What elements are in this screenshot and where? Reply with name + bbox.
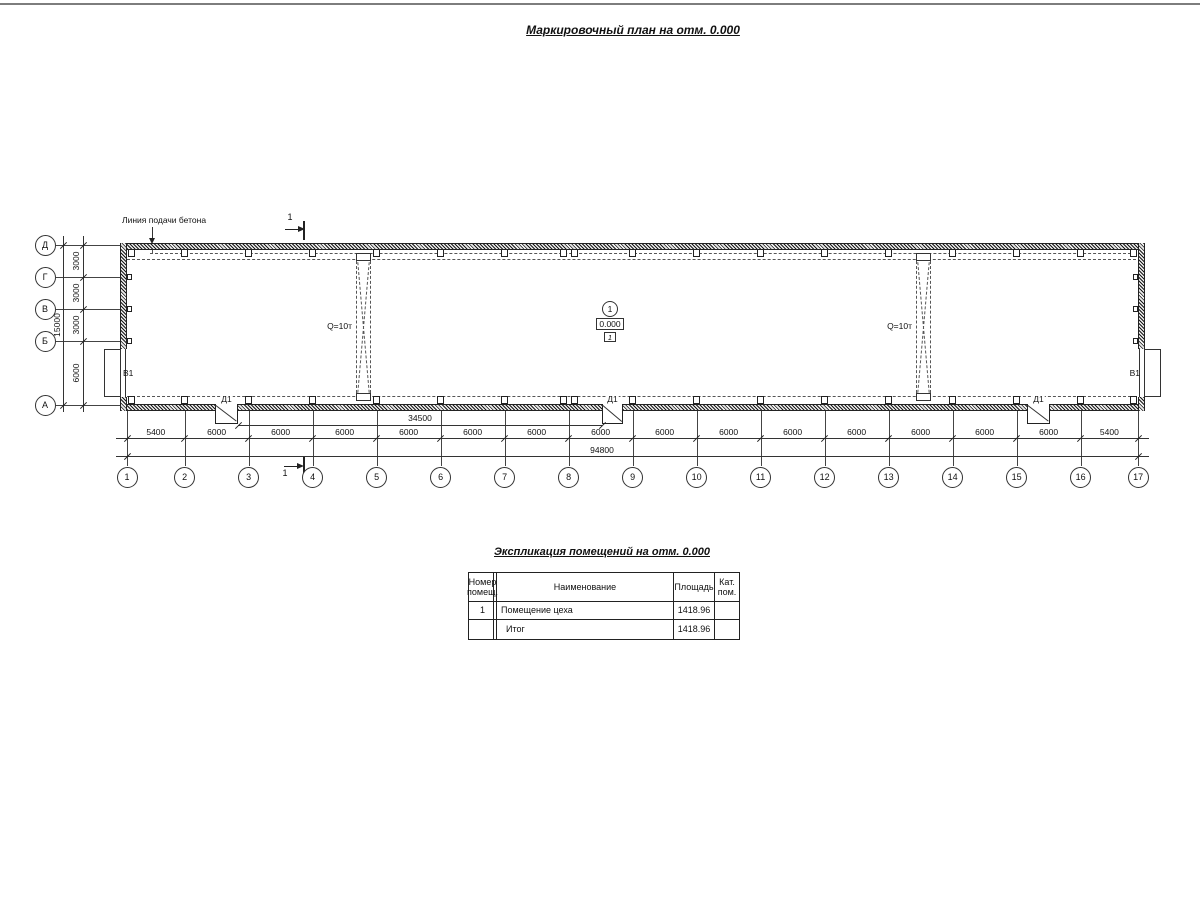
grid-bubble: 12 [814, 467, 835, 488]
column-marker [571, 249, 578, 257]
crane-bracket [916, 393, 931, 401]
total-dim-label: 94800 [589, 445, 615, 455]
column-marker [309, 249, 316, 257]
grid-bubble: 13 [878, 467, 899, 488]
dim-label: 6000 [782, 427, 803, 437]
axis-bubble: А [35, 395, 56, 416]
column-marker [560, 249, 567, 257]
dim-label: 6000 [846, 427, 867, 437]
crane-beam-edge [370, 261, 371, 393]
marking-plan: Линия подачи бетона 1 1 1 0.000 1 В1В1Q=… [0, 0, 1200, 520]
wall-pilaster [1133, 306, 1138, 312]
wall [120, 243, 127, 349]
axis-bubble: Г [35, 267, 56, 288]
elevation-mark: 0.000 [596, 318, 624, 330]
grid-bubble: 5 [366, 467, 387, 488]
column-marker [571, 396, 578, 404]
axis-extension-line [56, 405, 120, 406]
column-marker [1130, 249, 1137, 257]
crane-beam-edge [356, 261, 357, 393]
room-number-mark: 1 [602, 301, 618, 317]
grid-bubble: 17 [1128, 467, 1149, 488]
column-marker [501, 396, 508, 404]
concrete-line-pointer [152, 227, 153, 238]
grid-bubble: 11 [750, 467, 771, 488]
wall [238, 404, 602, 411]
grid-bubble: 4 [302, 467, 323, 488]
wall [120, 404, 215, 411]
column-marker [245, 396, 252, 404]
table-cell-room-area: 1418.96 [674, 602, 715, 620]
dim-label: 6000 [462, 427, 483, 437]
gate-vestibule [1144, 349, 1161, 397]
door-label: Д1 [1032, 394, 1044, 404]
column-marker [1013, 249, 1020, 257]
wall [1138, 397, 1145, 411]
table-cell-room-name: Помещение цеха [497, 602, 674, 620]
col-header-area: Площадь [674, 573, 715, 602]
dim-label: 6000 [910, 427, 931, 437]
column-marker [885, 396, 892, 404]
gate-vestibule [104, 349, 121, 397]
dim-line [238, 425, 602, 426]
column-marker [245, 249, 252, 257]
dim-label: 6000 [334, 427, 355, 437]
crane-bracket [916, 253, 931, 261]
grid-bubble: 16 [1070, 467, 1091, 488]
column-marker [757, 396, 764, 404]
wall-pilaster [127, 306, 132, 312]
section-mark-top-label: 1 [287, 212, 292, 222]
table-cell-room-category [715, 602, 739, 620]
dim-label: 5400 [1099, 427, 1120, 437]
crane-bracket [356, 253, 371, 261]
grid-bubble: 10 [686, 467, 707, 488]
column-marker [128, 249, 135, 257]
axis-extension-line [56, 277, 120, 278]
column-marker [949, 396, 956, 404]
crane-rail-dashed-line [127, 259, 1136, 260]
grid-bubble: 7 [494, 467, 515, 488]
dim-label: 6000 [398, 427, 419, 437]
dim-label: 3000 [71, 316, 81, 335]
concrete-line-label: Линия подачи бетона [122, 215, 206, 225]
table-double-line [493, 573, 494, 639]
section-mark-bottom-label: 1 [282, 468, 287, 478]
dim-label: 6000 [1038, 427, 1059, 437]
dim-label: 3000 [71, 284, 81, 303]
dim-label: 6000 [526, 427, 547, 437]
column-marker [821, 396, 828, 404]
column-marker [1130, 396, 1137, 404]
column-marker [629, 396, 636, 404]
column-marker [1077, 249, 1084, 257]
wall-pilaster [1133, 274, 1138, 280]
grid-bubble: 14 [942, 467, 963, 488]
wall-pilaster [127, 338, 132, 344]
column-marker [373, 396, 380, 404]
axis-extension-line [56, 245, 120, 246]
dim-label: 5400 [145, 427, 166, 437]
crane-beam-edge [916, 261, 917, 393]
wall [1138, 243, 1145, 349]
wall-pilaster [1133, 338, 1138, 344]
crane-capacity-label: Q=10т [872, 321, 912, 331]
column-marker [309, 396, 316, 404]
crane-bracket [356, 393, 371, 401]
column-marker [501, 249, 508, 257]
column-marker [373, 249, 380, 257]
column-marker [437, 249, 444, 257]
dim-label: 6000 [206, 427, 227, 437]
explication-title: Экспликация помещений на отм. 0.000 [494, 546, 710, 558]
col-header-category: Кат. пом. [715, 573, 739, 602]
column-marker [629, 249, 636, 257]
dim-label: 6000 [590, 427, 611, 437]
floor-type-mark: 1 [604, 332, 616, 342]
wall [623, 404, 1027, 411]
dim-label: 6000 [974, 427, 995, 437]
section-mark-top-tick [303, 221, 305, 240]
axis-bubble: Д [35, 235, 56, 256]
explication-table: Номер помещ. Наименование Площадь Кат. п… [468, 572, 740, 640]
wall [1050, 404, 1145, 411]
column-marker [757, 249, 764, 257]
door-label: Д1 [606, 394, 618, 404]
dim-label: 6000 [718, 427, 739, 437]
dim-line [116, 456, 1149, 457]
column-marker [181, 396, 188, 404]
dim-label: 3000 [71, 252, 81, 271]
axis-extension-line [56, 341, 120, 342]
drawing-sheet: Маркировочный план на отм. 0.000 Линия п… [0, 0, 1200, 900]
grid-bubble: 3 [238, 467, 259, 488]
column-marker [693, 249, 700, 257]
door-label: Д1 [220, 394, 232, 404]
column-marker [949, 249, 956, 257]
grid-bubble: 6 [430, 467, 451, 488]
grid-bubble: 1 [117, 467, 138, 488]
column-marker [560, 396, 567, 404]
crane-capacity-label: Q=10т [312, 321, 352, 331]
concrete-feed-dashed-line [150, 253, 1136, 254]
column-marker [437, 396, 444, 404]
dim-line [63, 236, 64, 412]
column-marker [1013, 396, 1020, 404]
gate-label: В1 [1112, 368, 1140, 378]
dim-label: 34500 [407, 413, 433, 423]
column-marker [693, 396, 700, 404]
column-marker [128, 396, 135, 404]
table-cell-total-category [715, 620, 739, 639]
dim-label: 6000 [654, 427, 675, 437]
column-marker [1077, 396, 1084, 404]
wall [120, 397, 127, 411]
dim-line [83, 236, 84, 412]
grid-bubble: 8 [558, 467, 579, 488]
grid-bubble: 15 [1006, 467, 1027, 488]
col-header-name: Наименование [497, 573, 674, 602]
crane-beam-edge [930, 261, 931, 393]
dim-label: 6000 [270, 427, 291, 437]
grid-bubble: 2 [174, 467, 195, 488]
grid-bubble: 9 [622, 467, 643, 488]
table-cell-total-area: 1418.96 [674, 620, 715, 639]
wall-pilaster [127, 274, 132, 280]
gate-label: В1 [123, 368, 133, 378]
total-dim-label: 15000 [52, 313, 62, 337]
column-marker [885, 249, 892, 257]
column-marker [181, 249, 188, 257]
column-marker [821, 249, 828, 257]
dim-label: 6000 [71, 364, 81, 383]
axis-extension-line [56, 309, 120, 310]
table-cell-total-label: Итог [497, 620, 674, 639]
